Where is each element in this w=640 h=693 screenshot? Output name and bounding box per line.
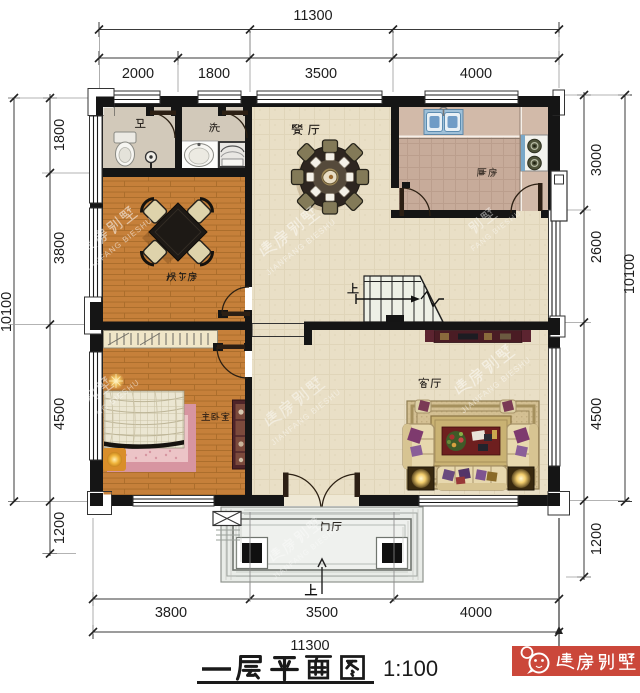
- svg-text:4500: 4500: [52, 398, 68, 430]
- svg-text:10100: 10100: [622, 254, 638, 294]
- svg-text:4000: 4000: [460, 605, 492, 621]
- svg-text:4500: 4500: [589, 398, 605, 430]
- svg-text:1800: 1800: [52, 119, 68, 151]
- svg-text:1200: 1200: [589, 523, 605, 555]
- svg-text:2600: 2600: [589, 231, 605, 263]
- svg-text:1200: 1200: [52, 512, 68, 544]
- svg-text:3800: 3800: [155, 605, 187, 621]
- svg-text:3500: 3500: [306, 605, 338, 621]
- svg-text:1:100: 1:100: [383, 656, 438, 681]
- svg-text:3000: 3000: [589, 144, 605, 176]
- svg-text:11300: 11300: [290, 638, 329, 654]
- svg-text:10100: 10100: [0, 292, 15, 332]
- svg-text:3800: 3800: [52, 232, 68, 264]
- svg-text:4000: 4000: [460, 66, 492, 82]
- svg-text:2000: 2000: [122, 66, 154, 82]
- svg-text:3500: 3500: [305, 66, 337, 82]
- svg-text:11300: 11300: [293, 8, 332, 24]
- svg-text:1800: 1800: [198, 66, 230, 82]
